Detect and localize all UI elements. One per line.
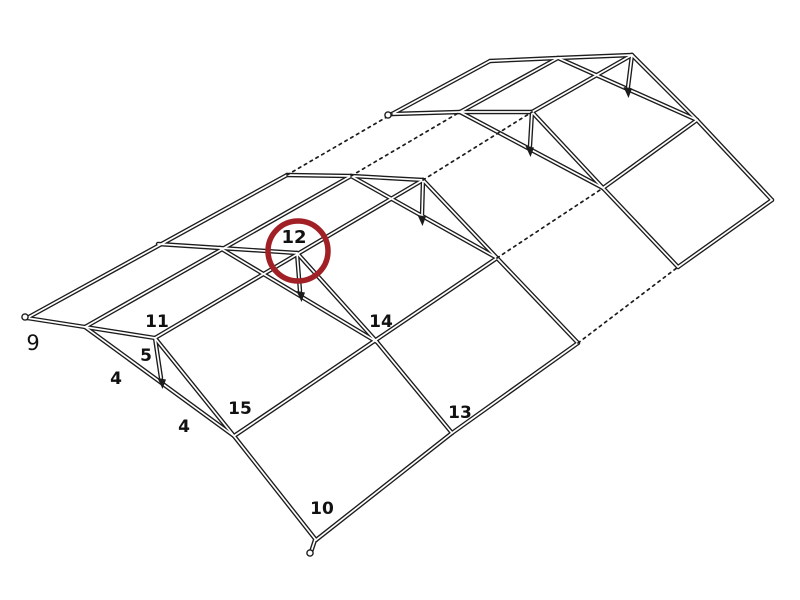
frame-tube-core <box>422 180 423 215</box>
tube-end-cap <box>385 112 391 118</box>
frame-tube-core <box>532 112 603 188</box>
part-label-5: 5 <box>140 346 152 366</box>
part-label-10: 10 <box>310 499 334 519</box>
dotted-continuation-line <box>351 112 460 176</box>
tube-end-cap <box>307 550 313 556</box>
dotted-continuation-line <box>497 188 603 258</box>
frame-tube-core <box>603 188 678 267</box>
frame-tube-core <box>377 342 452 433</box>
frame-tube-core <box>697 120 772 200</box>
frame-tube-core <box>423 180 497 258</box>
frame-tube-core <box>27 175 287 318</box>
frame-tube-core <box>603 120 697 188</box>
part-label-4: 4 <box>110 369 122 389</box>
tent-frame-diagram: 9451141510121413 <box>0 0 800 600</box>
part-label-12: 12 <box>281 227 306 248</box>
frame-tube-core <box>632 55 697 120</box>
diagram-canvas: 9451141510121413 <box>0 0 800 600</box>
frame-tube-core <box>297 253 377 342</box>
dotted-continuation-line <box>287 114 392 175</box>
frame-tube-core <box>27 318 85 327</box>
part-label-15: 15 <box>228 399 252 419</box>
dotted-continuation-line <box>578 267 678 343</box>
frame-tube-core <box>678 200 772 267</box>
frame-tube-core <box>234 436 316 540</box>
part-label-9: 9 <box>26 331 39 355</box>
part-label-13: 13 <box>448 403 472 423</box>
frame-tube-core <box>287 175 351 176</box>
part-label-11: 11 <box>145 312 169 332</box>
frame-tube-core <box>497 258 578 343</box>
frame-tube-core <box>316 433 452 540</box>
part-label-4: 4 <box>178 417 190 437</box>
stud-arrow-tip <box>418 215 427 226</box>
part-label-14: 14 <box>369 312 393 332</box>
tube-end-cap <box>22 314 28 320</box>
